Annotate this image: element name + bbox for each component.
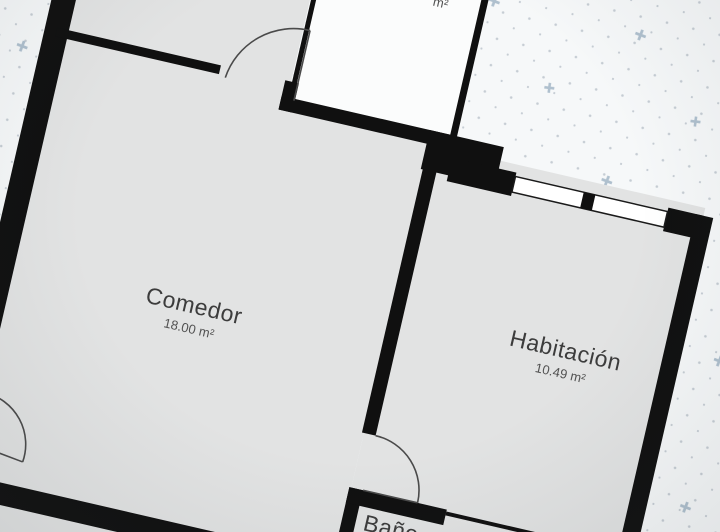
floor-plan-screenshot: Comedor 18.00 m² Habitación 10.49 m² Bañ…: [0, 0, 720, 532]
floor-plan-canvas: Comedor 18.00 m² Habitación 10.49 m² Bañ…: [0, 0, 720, 532]
